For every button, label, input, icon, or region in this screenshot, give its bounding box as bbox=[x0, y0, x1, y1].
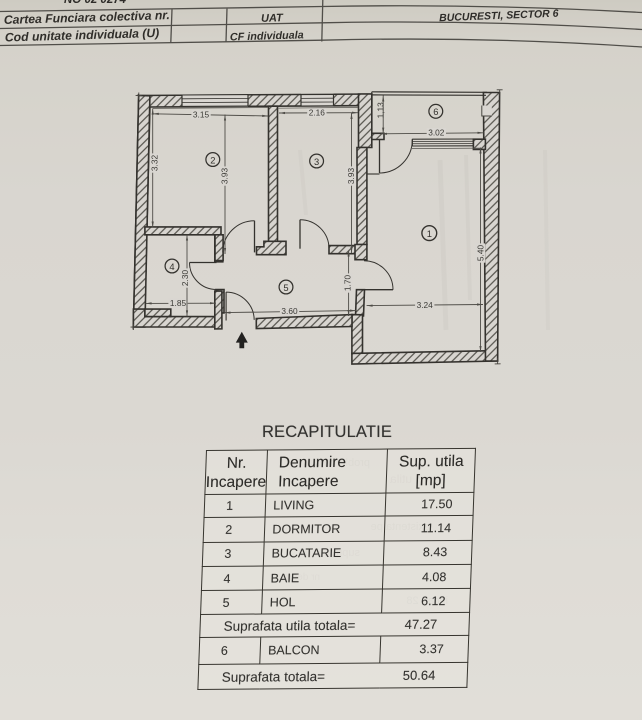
svg-text:1.85: 1.85 bbox=[170, 298, 187, 308]
svg-text:2.16: 2.16 bbox=[309, 107, 326, 117]
svg-text:1,13: 1,13 bbox=[376, 102, 386, 119]
svg-text:3.60: 3.60 bbox=[281, 306, 298, 316]
svg-text:3.15: 3.15 bbox=[193, 110, 210, 120]
svg-text:4: 4 bbox=[169, 261, 174, 272]
svg-text:3: 3 bbox=[314, 156, 319, 167]
svg-text:5: 5 bbox=[283, 282, 288, 293]
svg-text:Cod unitate individuala (U): Cod unitate individuala (U) bbox=[5, 26, 160, 45]
svg-text:NO 02 0274: NO 02 0274 bbox=[64, 0, 127, 6]
svg-text:2.30: 2.30 bbox=[180, 270, 190, 287]
svg-text:3.93: 3.93 bbox=[346, 168, 356, 185]
svg-text:1: 1 bbox=[427, 228, 432, 239]
svg-text:CF individuala: CF individuala bbox=[230, 29, 304, 43]
svg-text:5.40: 5.40 bbox=[475, 245, 485, 262]
svg-text:3.02: 3.02 bbox=[428, 128, 445, 138]
svg-text:3.24: 3.24 bbox=[417, 300, 434, 310]
svg-text:BUCURESTI, SECTOR 6: BUCURESTI, SECTOR 6 bbox=[439, 8, 559, 25]
svg-text:1.70: 1.70 bbox=[343, 275, 353, 292]
svg-text:UAT: UAT bbox=[261, 12, 284, 25]
svg-text:3.32: 3.32 bbox=[150, 155, 160, 172]
svg-text:6: 6 bbox=[433, 106, 438, 117]
svg-text:2: 2 bbox=[210, 154, 215, 165]
svg-text:3.93: 3.93 bbox=[219, 168, 229, 185]
